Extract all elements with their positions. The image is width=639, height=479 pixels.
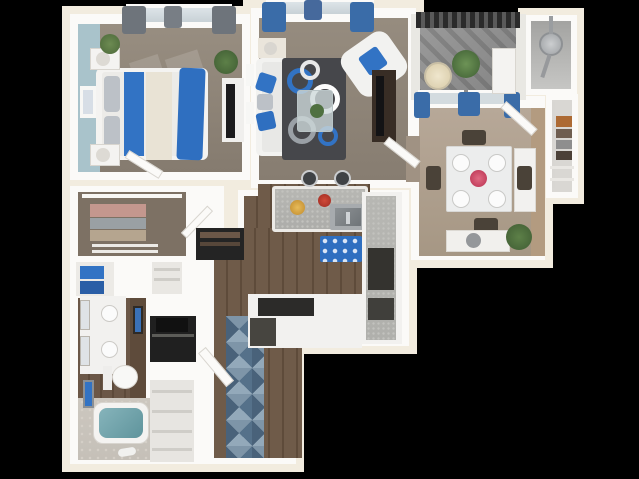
closet-a-shelf bbox=[152, 334, 194, 337]
dining-chair-top bbox=[462, 130, 486, 145]
bed-cream-throw bbox=[146, 72, 172, 160]
plate-1 bbox=[452, 154, 470, 172]
bedroom-tv bbox=[226, 84, 235, 138]
wardrobe-shelf-1 bbox=[550, 166, 574, 169]
wardrobe-clothes-4 bbox=[556, 151, 572, 160]
living-wall-frame-2 bbox=[246, 102, 254, 124]
wardrobe-rod bbox=[552, 102, 555, 188]
balcony-railing bbox=[416, 12, 520, 28]
lamp-north bbox=[96, 52, 110, 66]
plant-dining bbox=[506, 224, 532, 250]
bed-blue-runner bbox=[124, 72, 144, 156]
island-flowers bbox=[290, 200, 305, 215]
wardrobe-clothes-1 bbox=[556, 116, 572, 127]
kitchen-faucet bbox=[346, 212, 350, 224]
balcony-chair bbox=[424, 62, 452, 90]
living-curtain-right bbox=[350, 2, 374, 32]
closet-clothes-1 bbox=[90, 204, 146, 217]
wardrobe-clothes-3 bbox=[556, 140, 572, 149]
vanity-mirror-1 bbox=[80, 300, 90, 330]
living-curtain-left bbox=[262, 2, 286, 32]
fridge bbox=[368, 248, 394, 290]
floor-plan-canvas bbox=[0, 0, 639, 479]
bedroom-art-inner bbox=[83, 90, 93, 114]
living-wall-frame-1 bbox=[246, 64, 254, 86]
wardrobe-clothes-2 bbox=[556, 129, 572, 138]
living-curtain-mid bbox=[304, 0, 322, 20]
cooktop bbox=[258, 298, 314, 316]
vanity-mirror-2 bbox=[80, 336, 90, 366]
lamp-south bbox=[96, 148, 110, 162]
closet-b-shelf-4 bbox=[152, 448, 192, 451]
kitchen-blue-mat bbox=[320, 236, 362, 262]
toilet-tank bbox=[103, 366, 112, 390]
bedroom-curtain-left bbox=[122, 6, 146, 34]
closet-shoe-rack-2 bbox=[92, 250, 158, 253]
plant-bedroom-palm bbox=[214, 50, 238, 74]
towel-stack-1 bbox=[80, 266, 104, 279]
closet-b-shelf-2 bbox=[152, 410, 192, 413]
closet-shelf-top bbox=[82, 194, 182, 198]
vanity-sink-1 bbox=[101, 305, 118, 322]
living-tv bbox=[376, 76, 384, 136]
bed-blue-drape bbox=[176, 68, 205, 161]
plate-2 bbox=[488, 154, 506, 172]
side-table-lamp bbox=[264, 42, 277, 55]
bedroom-curtain-mid bbox=[164, 6, 182, 28]
dining-chair-left bbox=[426, 166, 441, 190]
plate-4 bbox=[488, 190, 506, 208]
bar-stool-1 bbox=[301, 170, 318, 187]
dining-curtain-3 bbox=[466, 92, 480, 116]
mini-closet-shelf-2 bbox=[154, 278, 180, 281]
balcony-door-panel bbox=[492, 48, 516, 94]
wardrobe-shelf-2 bbox=[550, 178, 574, 181]
dining-chair-right bbox=[517, 166, 532, 190]
towel-rack-blue bbox=[83, 380, 94, 408]
closet-clothes-3 bbox=[90, 230, 146, 241]
plant-balcony bbox=[452, 50, 480, 78]
closet-a-box bbox=[156, 318, 188, 332]
coffee-table-plant bbox=[310, 104, 324, 118]
pantry-shelf bbox=[200, 242, 240, 246]
plate-3 bbox=[452, 190, 470, 208]
closet-b-shelf-3 bbox=[152, 430, 192, 433]
sideboard-decor bbox=[466, 233, 481, 248]
appliance-right bbox=[368, 298, 394, 320]
towel-stack-2 bbox=[80, 281, 104, 294]
bar-stool-2 bbox=[334, 170, 351, 187]
closet-clothes-2 bbox=[90, 218, 146, 229]
toilet-bowl bbox=[112, 365, 138, 389]
bath-art-blue bbox=[133, 306, 143, 334]
water-heater bbox=[539, 32, 563, 56]
mini-closet-shelf-1 bbox=[154, 268, 180, 271]
plant-bedroom-corner bbox=[100, 34, 120, 54]
closet-shoe-rack-1 bbox=[92, 244, 158, 247]
bed-pillow-1 bbox=[104, 76, 120, 112]
oven bbox=[250, 318, 276, 346]
table-flowers bbox=[470, 170, 487, 187]
rug-ring-white-2 bbox=[300, 60, 320, 80]
pantry-items bbox=[200, 232, 240, 238]
vanity-sink-2 bbox=[101, 341, 118, 358]
sofa-pillow-blue-2 bbox=[255, 110, 276, 131]
bathtub-water bbox=[99, 408, 143, 438]
closet-b-shelf-1 bbox=[152, 390, 192, 393]
bedroom-curtain-right bbox=[212, 6, 236, 34]
dining-curtain-1 bbox=[414, 92, 430, 118]
sofa-pillow-gray bbox=[257, 94, 273, 110]
water-heater-pipe bbox=[549, 16, 553, 34]
